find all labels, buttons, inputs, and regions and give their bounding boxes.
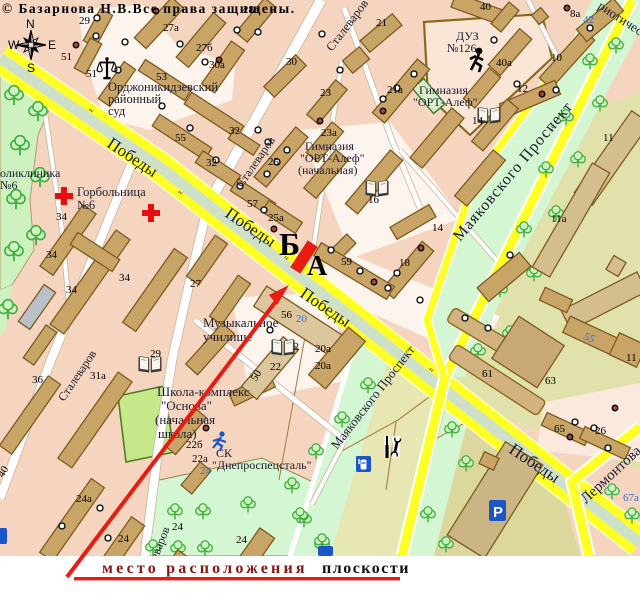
svg-text:10: 10 bbox=[551, 52, 563, 64]
svg-text:24: 24 bbox=[200, 465, 212, 477]
svg-text:40а: 40а bbox=[496, 57, 512, 69]
svg-text:№126: №126 bbox=[447, 41, 476, 55]
svg-text:место расположения: место расположения bbox=[102, 560, 308, 577]
svg-text:24а: 24а bbox=[76, 493, 92, 505]
svg-text:30: 30 bbox=[286, 56, 298, 68]
svg-text:59: 59 bbox=[341, 256, 353, 268]
svg-text:29: 29 bbox=[79, 15, 91, 27]
svg-text:№6: №6 bbox=[77, 198, 95, 212]
svg-text:32: 32 bbox=[229, 125, 240, 137]
svg-text:53: 53 bbox=[156, 71, 168, 83]
svg-text:"ОРТ-Алеф": "ОРТ-Алеф" bbox=[413, 95, 478, 109]
svg-text:65: 65 bbox=[554, 423, 566, 435]
svg-text:24: 24 bbox=[172, 521, 184, 533]
svg-text:18: 18 bbox=[399, 257, 411, 269]
svg-text:42: 42 bbox=[583, 14, 594, 26]
svg-text:23а: 23а bbox=[321, 127, 337, 139]
svg-text:плоскости: плоскости bbox=[322, 560, 410, 577]
svg-text:30а: 30а bbox=[209, 59, 225, 71]
svg-text:20: 20 bbox=[296, 313, 308, 325]
svg-text:"Днепроспецсталь": "Днепроспецсталь" bbox=[212, 458, 312, 472]
svg-text:24: 24 bbox=[118, 533, 130, 545]
svg-text:26: 26 bbox=[595, 425, 607, 437]
svg-text:"Основа": "Основа" bbox=[161, 398, 212, 413]
svg-text:34: 34 bbox=[46, 249, 58, 261]
svg-text:А: А bbox=[307, 251, 328, 282]
svg-text:57: 57 bbox=[247, 198, 259, 210]
svg-text:25: 25 bbox=[268, 156, 280, 168]
svg-text:Б: Б bbox=[279, 226, 300, 262]
svg-text:Музыкальное: Музыкальное bbox=[203, 315, 279, 330]
svg-text:61: 61 bbox=[482, 368, 493, 380]
svg-text:23: 23 bbox=[320, 87, 332, 99]
svg-text:34: 34 bbox=[66, 284, 78, 296]
svg-text:25а: 25а bbox=[268, 212, 284, 224]
svg-text:Горбольница: Горбольница bbox=[77, 185, 146, 199]
svg-text:14: 14 bbox=[472, 115, 484, 127]
svg-text:36: 36 bbox=[32, 374, 44, 386]
svg-text:E: E bbox=[48, 38, 56, 52]
svg-text:8а: 8а bbox=[570, 8, 581, 20]
svg-text:20а: 20а bbox=[315, 343, 331, 355]
svg-text:W: W bbox=[8, 38, 20, 52]
svg-text:63: 63 bbox=[545, 375, 557, 387]
svg-text:55: 55 bbox=[175, 132, 187, 144]
svg-text:21: 21 bbox=[376, 17, 387, 29]
svg-text:20а: 20а bbox=[315, 360, 331, 372]
svg-text:P: P bbox=[493, 504, 503, 521]
svg-text:24: 24 bbox=[236, 534, 248, 546]
svg-text:22а: 22а bbox=[192, 453, 208, 465]
svg-text:51: 51 bbox=[86, 68, 97, 80]
svg-text:11а: 11а bbox=[551, 213, 567, 225]
svg-text:31а: 31а bbox=[90, 370, 106, 382]
svg-text:(начальная): (начальная) bbox=[298, 163, 357, 177]
svg-text:34: 34 bbox=[56, 211, 68, 223]
svg-text:67а: 67а bbox=[623, 492, 639, 504]
svg-text:21а: 21а bbox=[387, 84, 403, 96]
svg-text:14: 14 bbox=[432, 222, 444, 234]
svg-text:суд: суд bbox=[108, 104, 126, 118]
svg-text:N: N bbox=[26, 17, 35, 31]
svg-text:27б: 27б bbox=[196, 42, 213, 54]
svg-text:32: 32 bbox=[206, 157, 217, 169]
svg-text:11: 11 bbox=[603, 132, 614, 144]
svg-text:51: 51 bbox=[61, 51, 72, 63]
svg-text:22: 22 bbox=[270, 361, 281, 373]
svg-text:40: 40 bbox=[480, 1, 492, 13]
svg-text:№6: №6 bbox=[0, 178, 17, 192]
svg-text:22б: 22б bbox=[186, 439, 203, 451]
svg-text:© Базарнова Н.В.Все права защи: © Базарнова Н.В.Все права защищены. bbox=[2, 1, 296, 16]
svg-text:11: 11 bbox=[626, 352, 637, 364]
svg-text:S: S bbox=[27, 61, 35, 75]
svg-text:27а: 27а bbox=[163, 22, 179, 34]
svg-text:12: 12 bbox=[517, 83, 528, 95]
svg-text:34: 34 bbox=[119, 272, 131, 284]
svg-text:27: 27 bbox=[190, 278, 202, 290]
svg-text:56: 56 bbox=[281, 309, 293, 321]
